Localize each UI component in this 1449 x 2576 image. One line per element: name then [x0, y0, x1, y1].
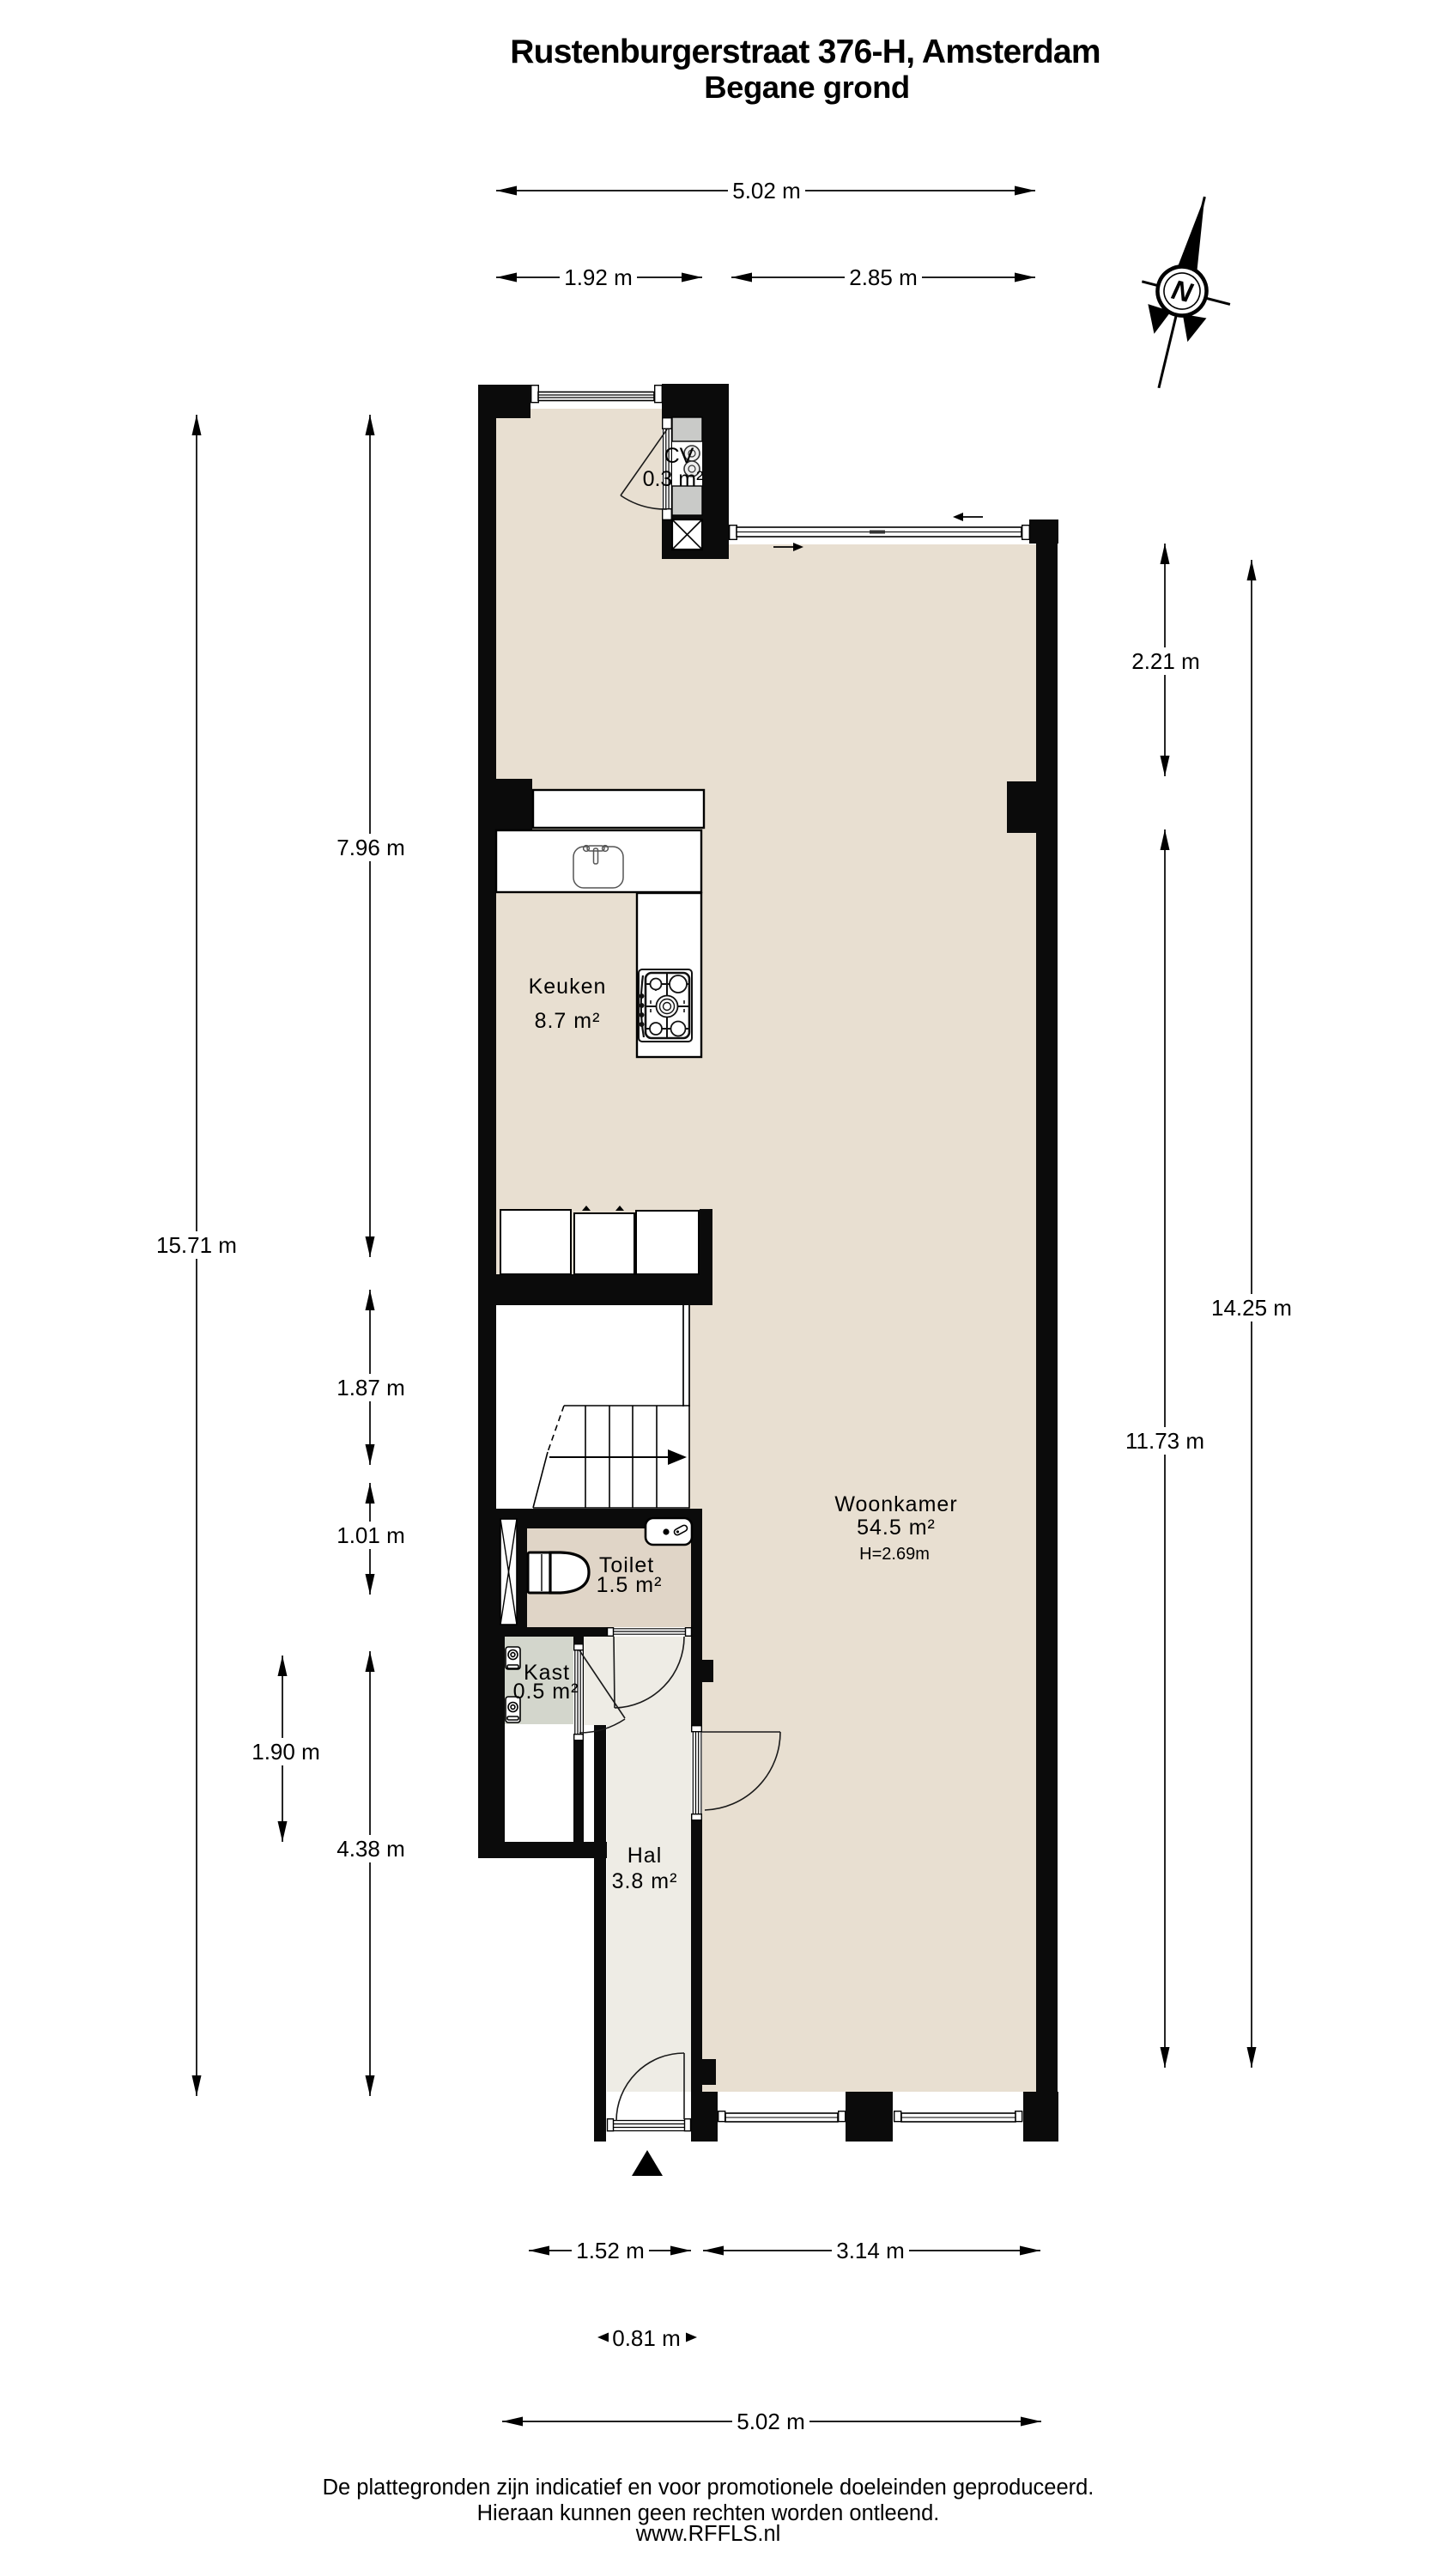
svg-text:H=2.69m: H=2.69m [859, 1545, 930, 1564]
svg-text:2.21 m: 2.21 m [1131, 648, 1200, 674]
svg-text:1.92 m: 1.92 m [564, 264, 633, 290]
svg-text:Rustenburgerstraat 376-H, Amst: Rustenburgerstraat 376-H, Amsterdam [510, 33, 1100, 70]
svg-text:2.85 m: 2.85 m [849, 264, 918, 290]
svg-text:www.RFFLS.nl: www.RFFLS.nl [635, 2522, 781, 2546]
svg-text:1.90 m: 1.90 m [252, 1739, 320, 1765]
svg-text:3.14 m: 3.14 m [836, 2238, 905, 2263]
svg-text:De plattegronden zijn indicati: De plattegronden zijn indicatief en voor… [323, 2476, 1094, 2500]
svg-text:5.02 m: 5.02 m [732, 178, 801, 204]
svg-text:1.87 m: 1.87 m [336, 1375, 405, 1400]
svg-text:1.5 m²: 1.5 m² [597, 1573, 663, 1597]
svg-text:7.96 m: 7.96 m [336, 835, 405, 860]
svg-text:Hal: Hal [627, 1844, 663, 1868]
svg-text:Keuken: Keuken [529, 975, 607, 999]
svg-text:1.01 m: 1.01 m [336, 1522, 405, 1548]
svg-text:Begane grond: Begane grond [704, 70, 909, 105]
svg-text:CV: CV [664, 444, 694, 468]
svg-text:8.7 m²: 8.7 m² [535, 1009, 601, 1033]
svg-text:0.5 m²: 0.5 m² [513, 1680, 579, 1704]
svg-text:15.71 m: 15.71 m [156, 1232, 237, 1258]
svg-text:11.73 m: 11.73 m [1125, 1428, 1204, 1454]
svg-text:54.5 m²: 54.5 m² [857, 1516, 936, 1540]
svg-text:14.25 m: 14.25 m [1211, 1295, 1292, 1321]
svg-text:1.52 m: 1.52 m [576, 2238, 645, 2263]
svg-text:Woonkamer: Woonkamer [834, 1492, 957, 1516]
svg-text:5.02 m: 5.02 m [737, 2409, 805, 2434]
svg-text:0.3 m²: 0.3 m² [643, 467, 704, 491]
svg-text:3.8 m²: 3.8 m² [612, 1869, 678, 1893]
svg-text:4.38 m: 4.38 m [336, 1836, 405, 1862]
svg-text:0.81 m: 0.81 m [612, 2325, 681, 2351]
